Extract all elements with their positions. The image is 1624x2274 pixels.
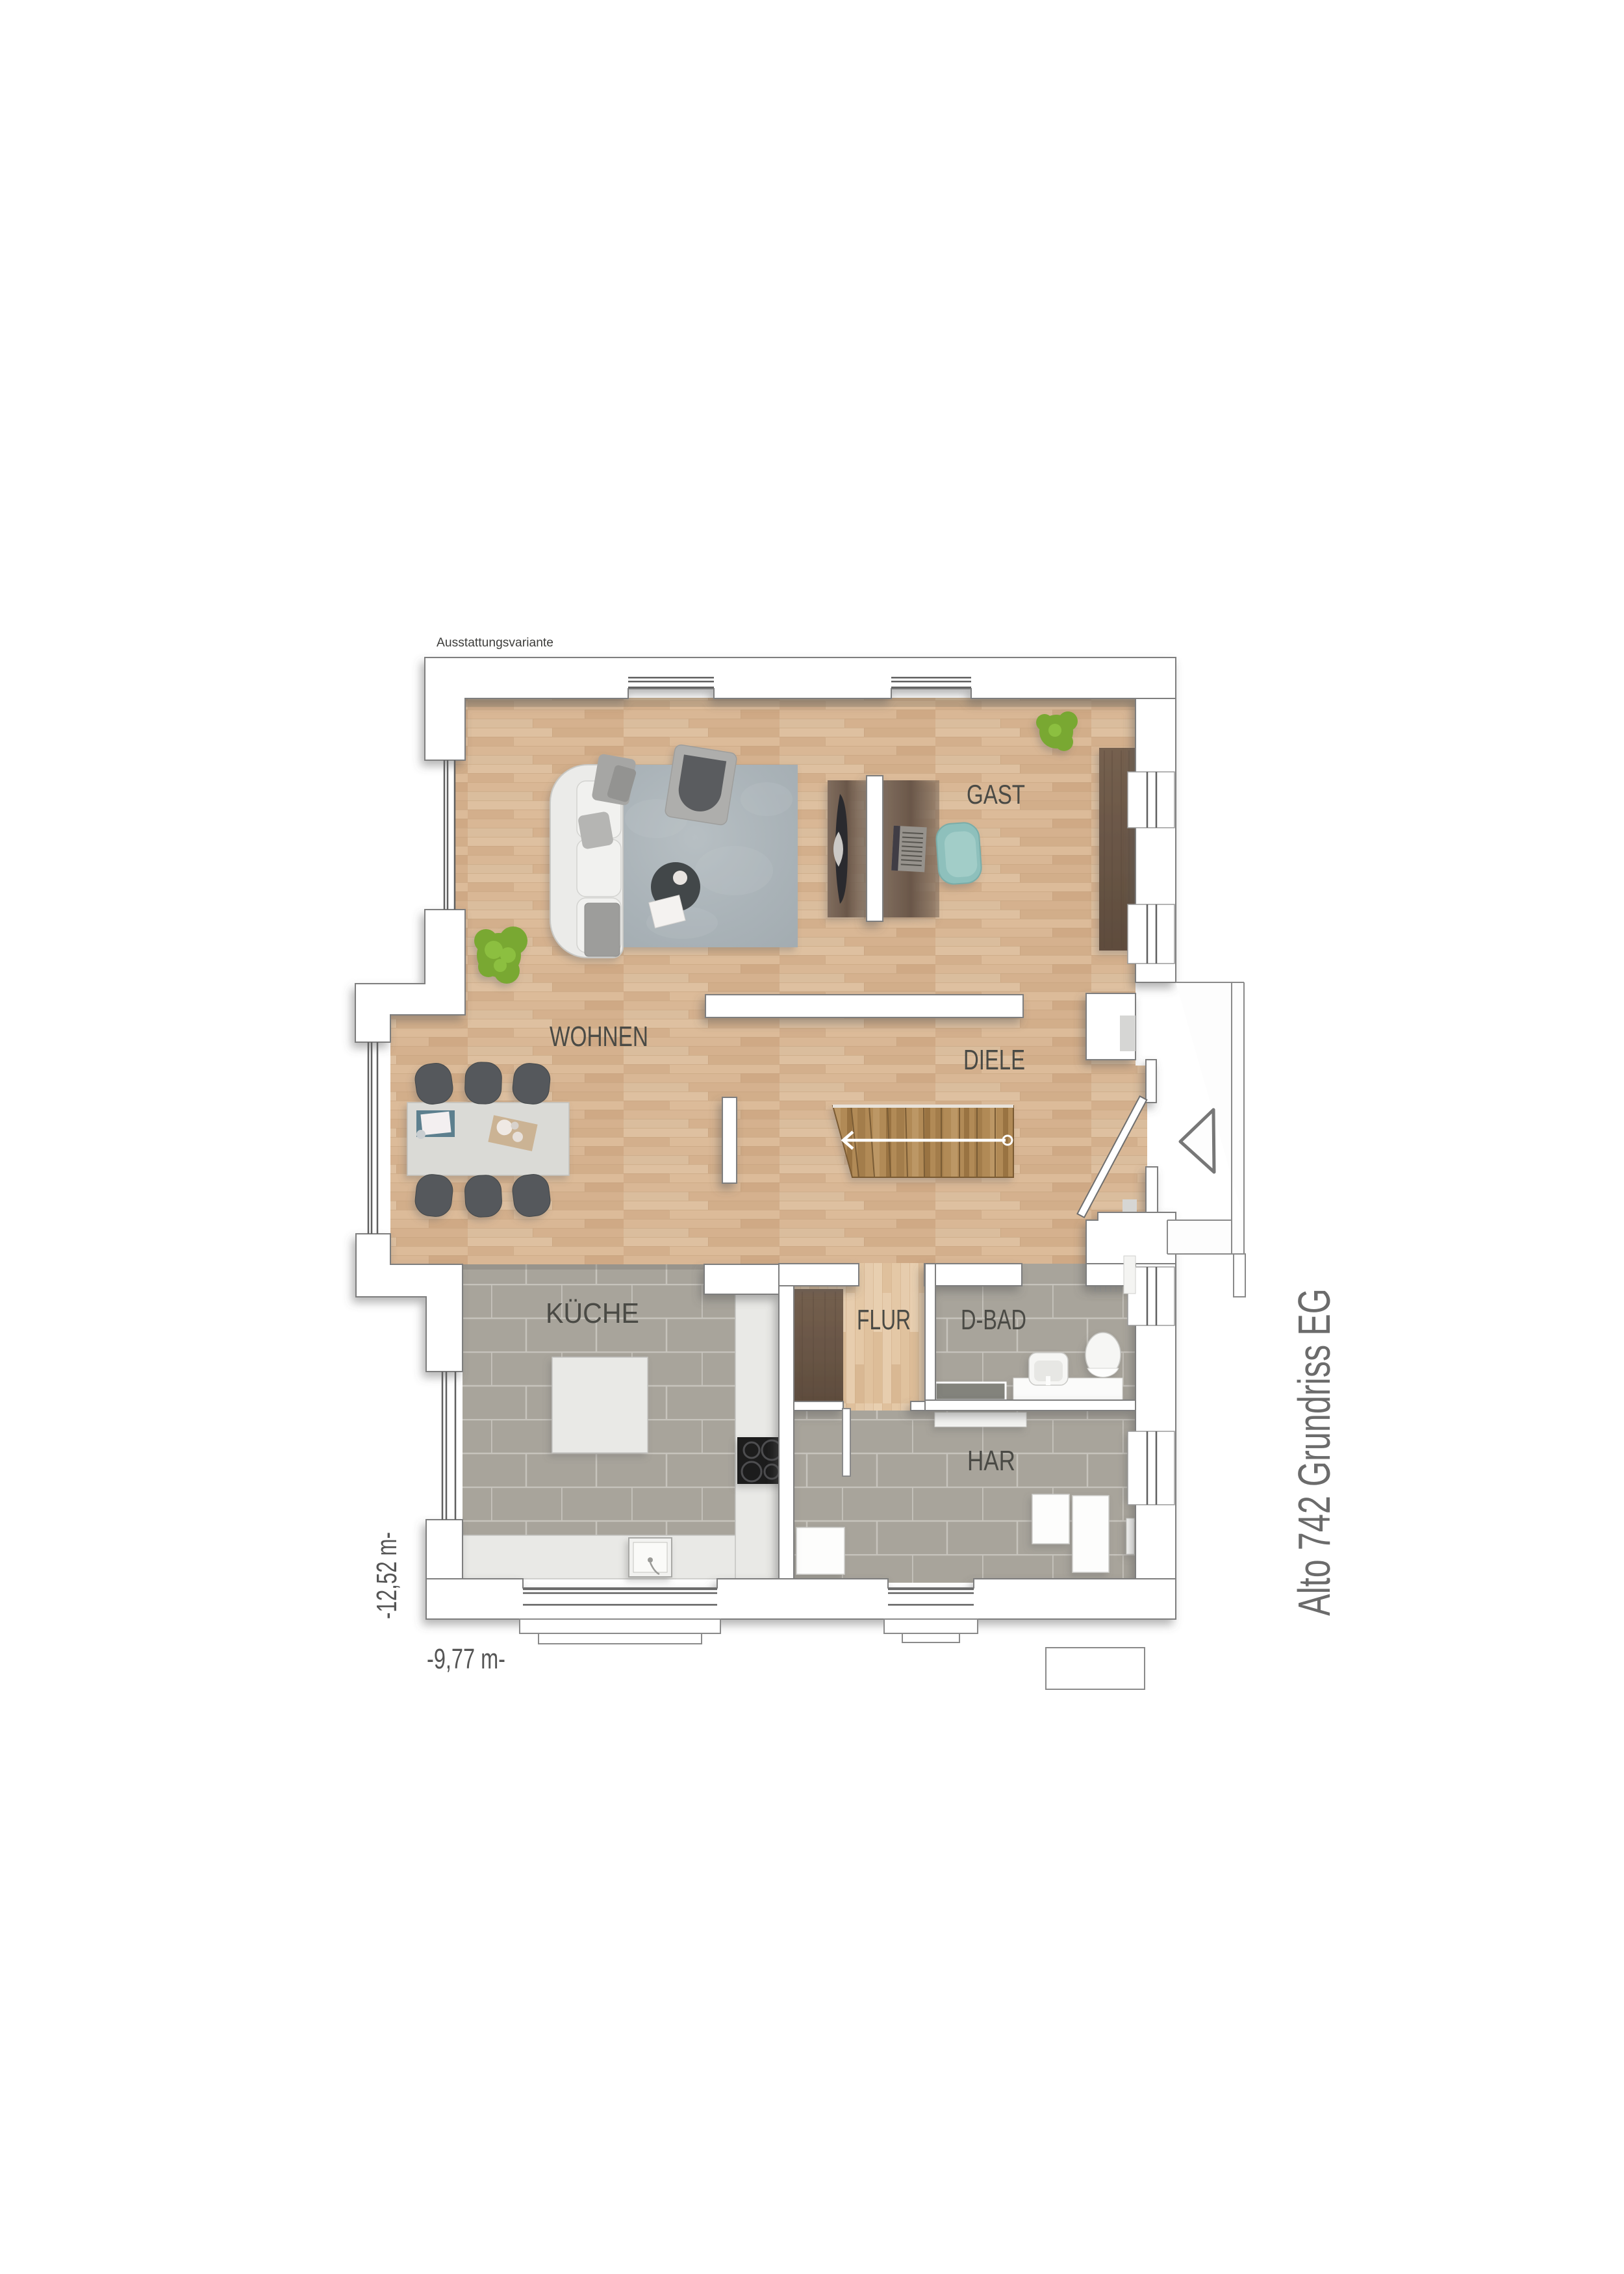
svg-text:FLUR: FLUR <box>857 1304 911 1336</box>
svg-text:-12,52 m-: -12,52 m- <box>371 1532 403 1619</box>
svg-text:D-BAD: D-BAD <box>961 1304 1026 1336</box>
svg-text:Ausstattungsvariante: Ausstattungsvariante <box>437 636 553 650</box>
svg-text:DIELE: DIELE <box>963 1044 1025 1076</box>
svg-text:WOHNEN: WOHNEN <box>550 1021 648 1053</box>
svg-text:-9,77 m-: -9,77 m- <box>427 1643 505 1675</box>
svg-text:HAR: HAR <box>967 1445 1015 1477</box>
svg-text:Alto 742 Grundriss EG: Alto 742 Grundriss EG <box>1289 1288 1339 1616</box>
svg-text:KÜCHE: KÜCHE <box>546 1297 639 1329</box>
svg-text:GAST: GAST <box>967 779 1025 810</box>
